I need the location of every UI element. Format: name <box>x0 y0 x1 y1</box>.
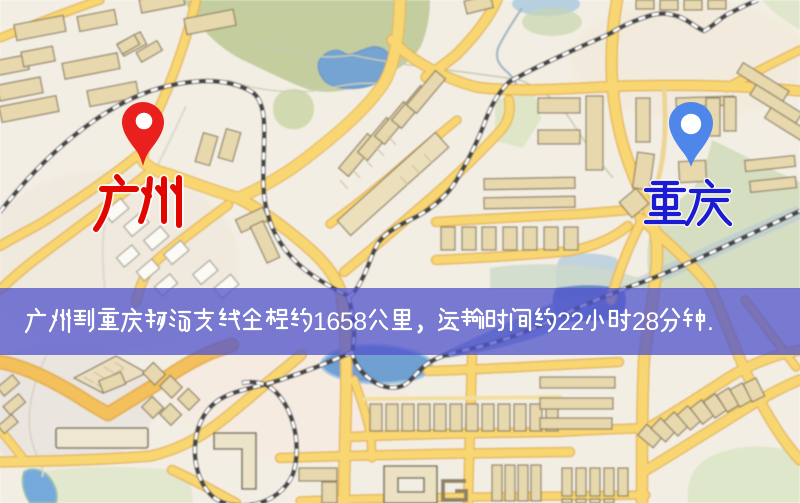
svg-text:.: . <box>707 308 714 336</box>
svg-text:22: 22 <box>557 308 584 336</box>
svg-text:1658: 1658 <box>313 308 367 336</box>
svg-text:28: 28 <box>632 308 659 336</box>
